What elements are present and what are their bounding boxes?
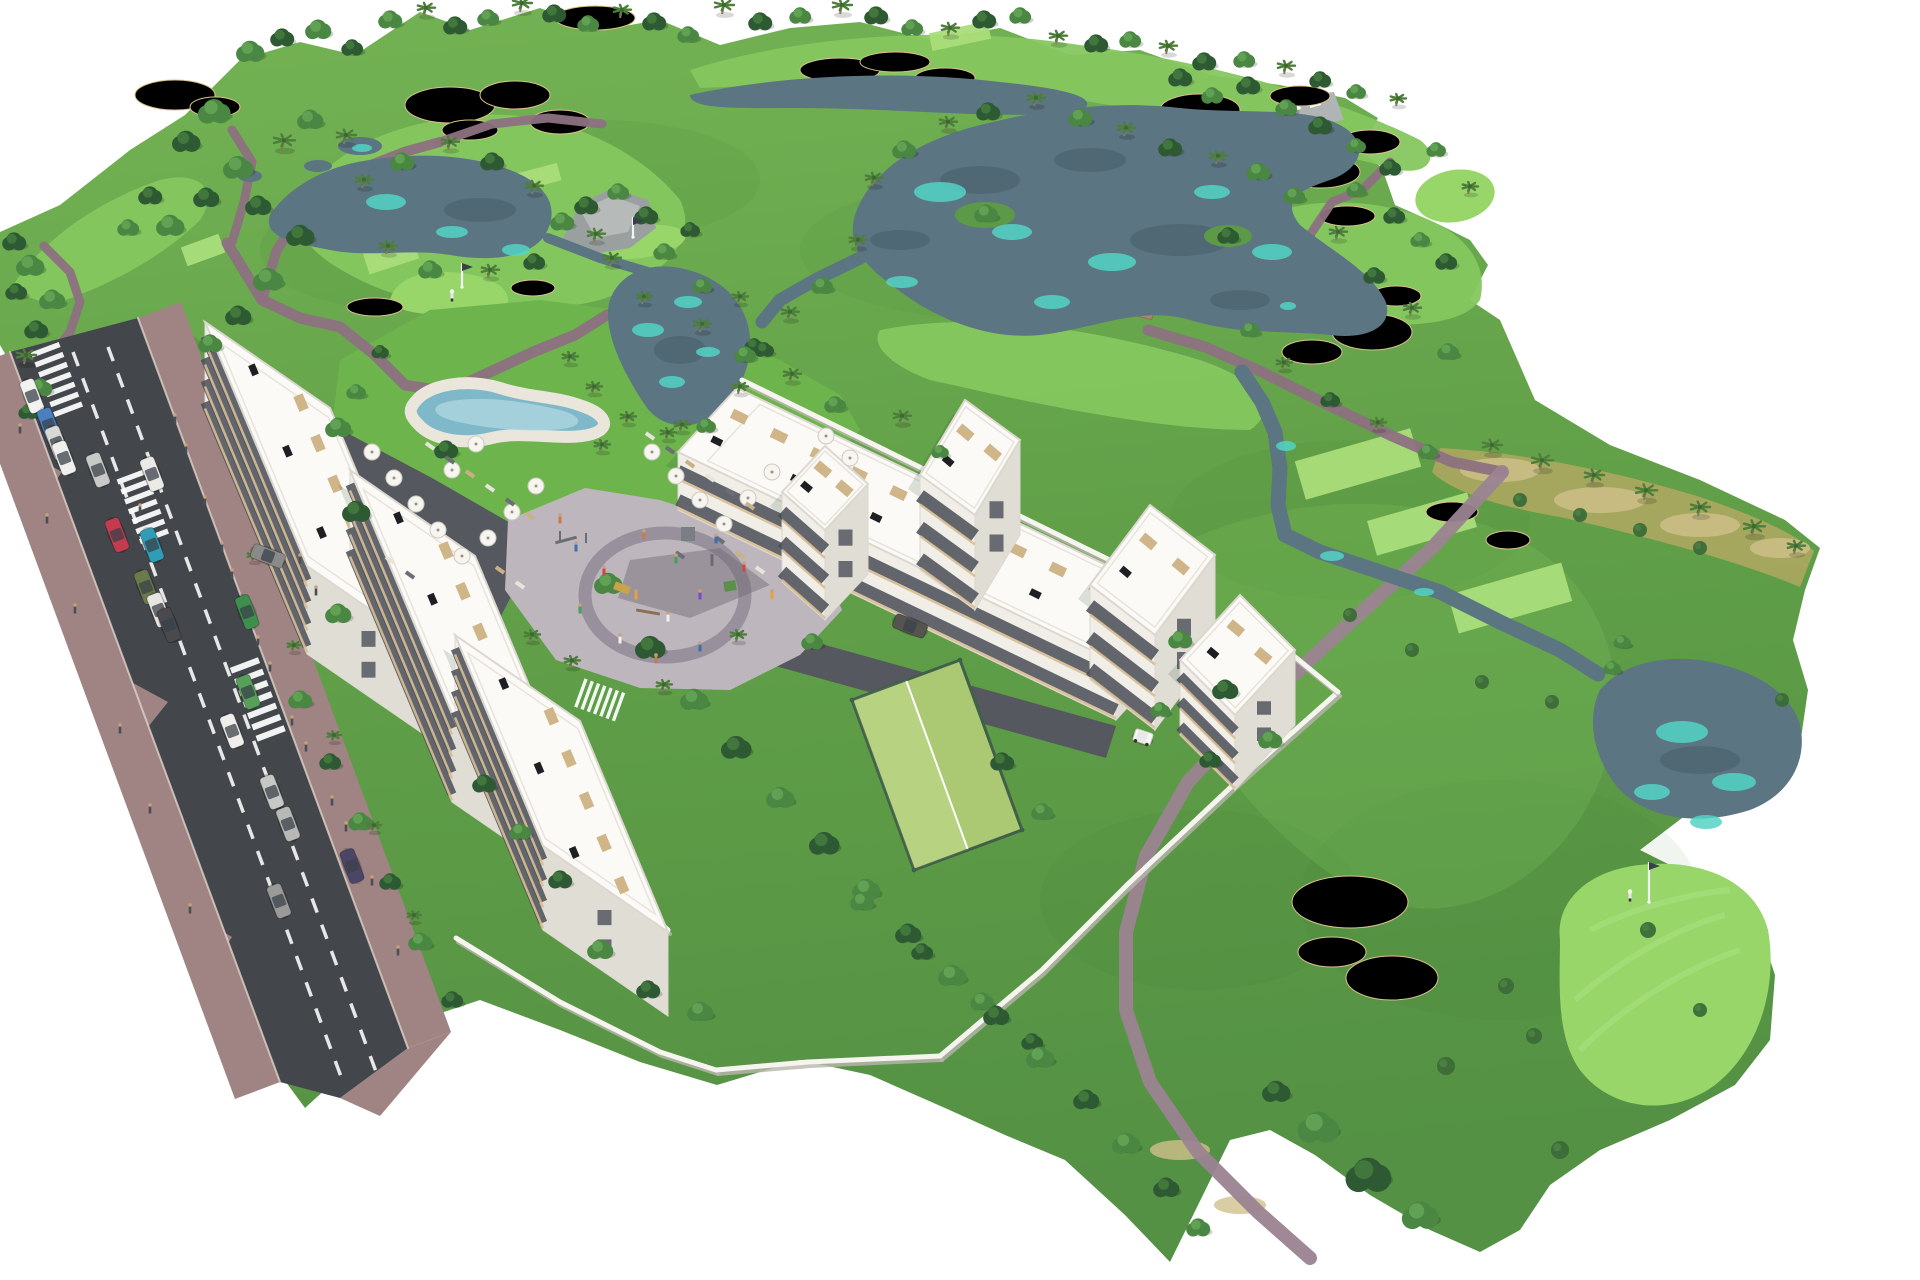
golf-resort-scene: [0, 0, 1920, 1280]
aerial-site-plan: [0, 0, 1920, 1280]
